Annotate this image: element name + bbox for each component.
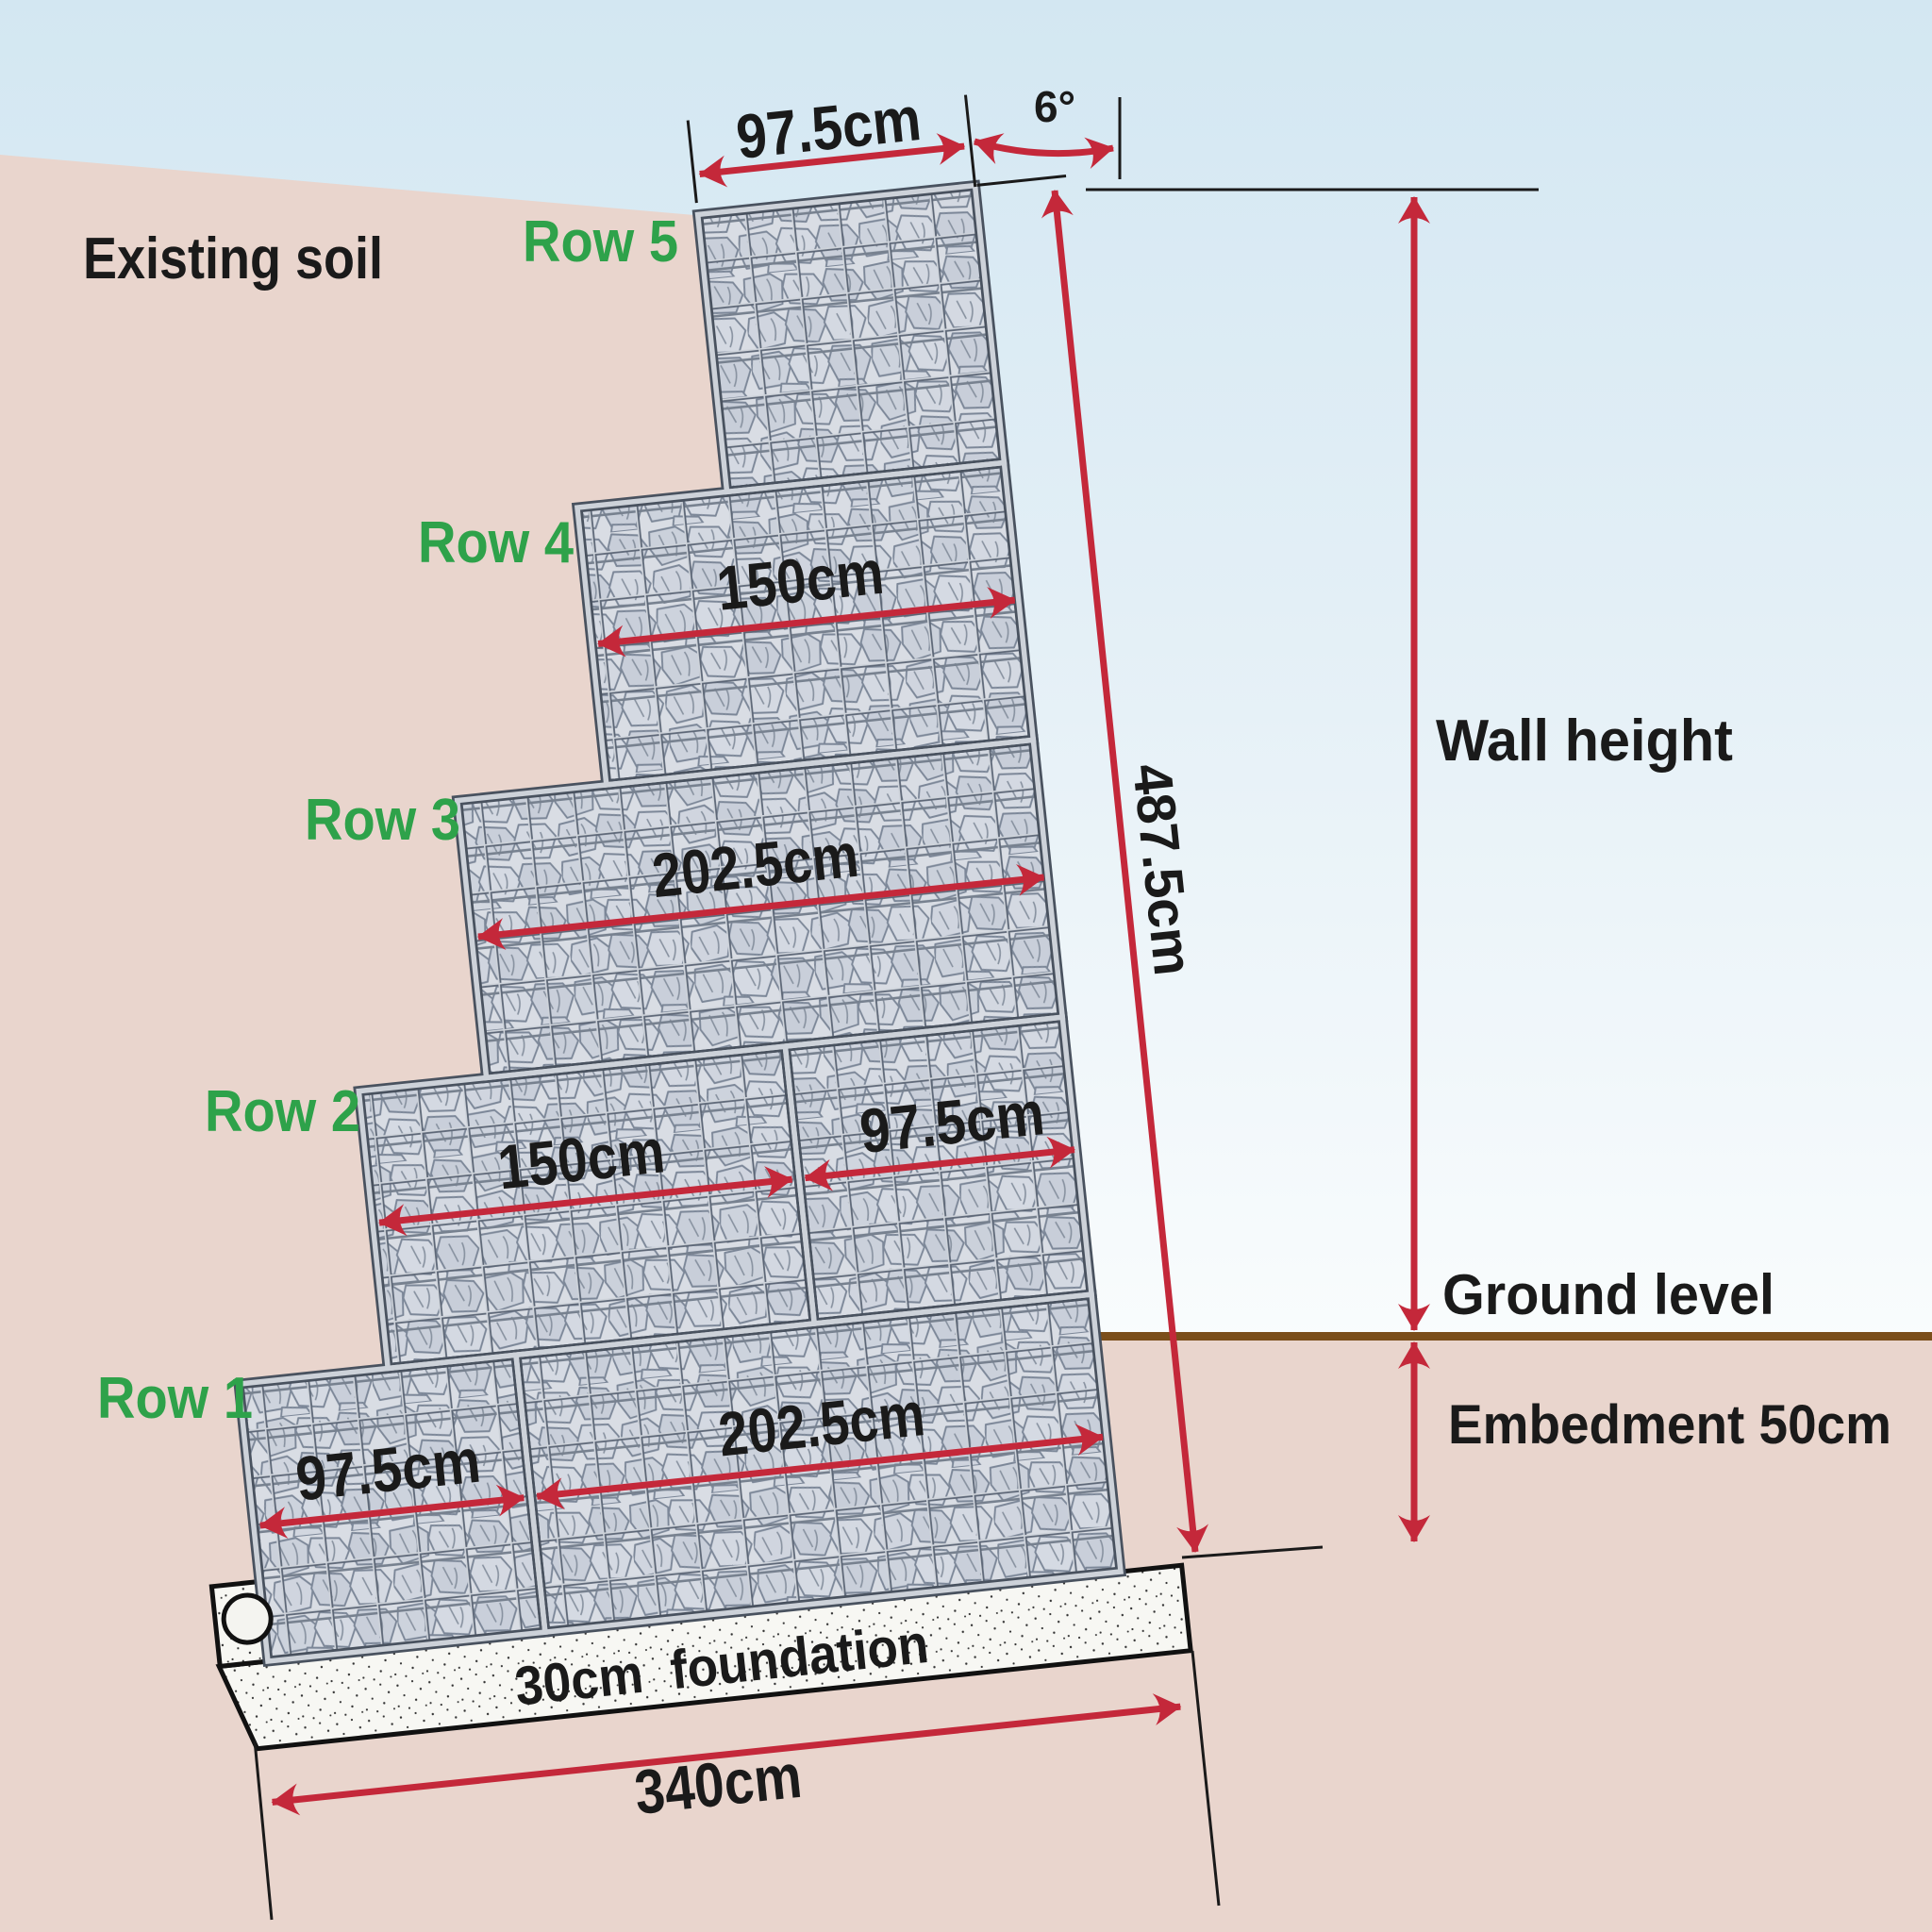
svg-text:Row 1: Row 1 <box>97 1366 253 1431</box>
svg-text:Row 2: Row 2 <box>205 1079 360 1144</box>
svg-text:Row 4: Row 4 <box>418 510 574 575</box>
svg-text:Row 3: Row 3 <box>305 788 460 853</box>
svg-text:Row 5: Row 5 <box>523 209 678 275</box>
svg-text:6°: 6° <box>1034 82 1075 131</box>
svg-text:Existing soil: Existing soil <box>83 226 383 291</box>
svg-text:Embedment 50cm: Embedment 50cm <box>1448 1394 1891 1456</box>
svg-text:Wall height: Wall height <box>1436 708 1733 774</box>
svg-text:Ground level: Ground level <box>1442 1263 1774 1326</box>
